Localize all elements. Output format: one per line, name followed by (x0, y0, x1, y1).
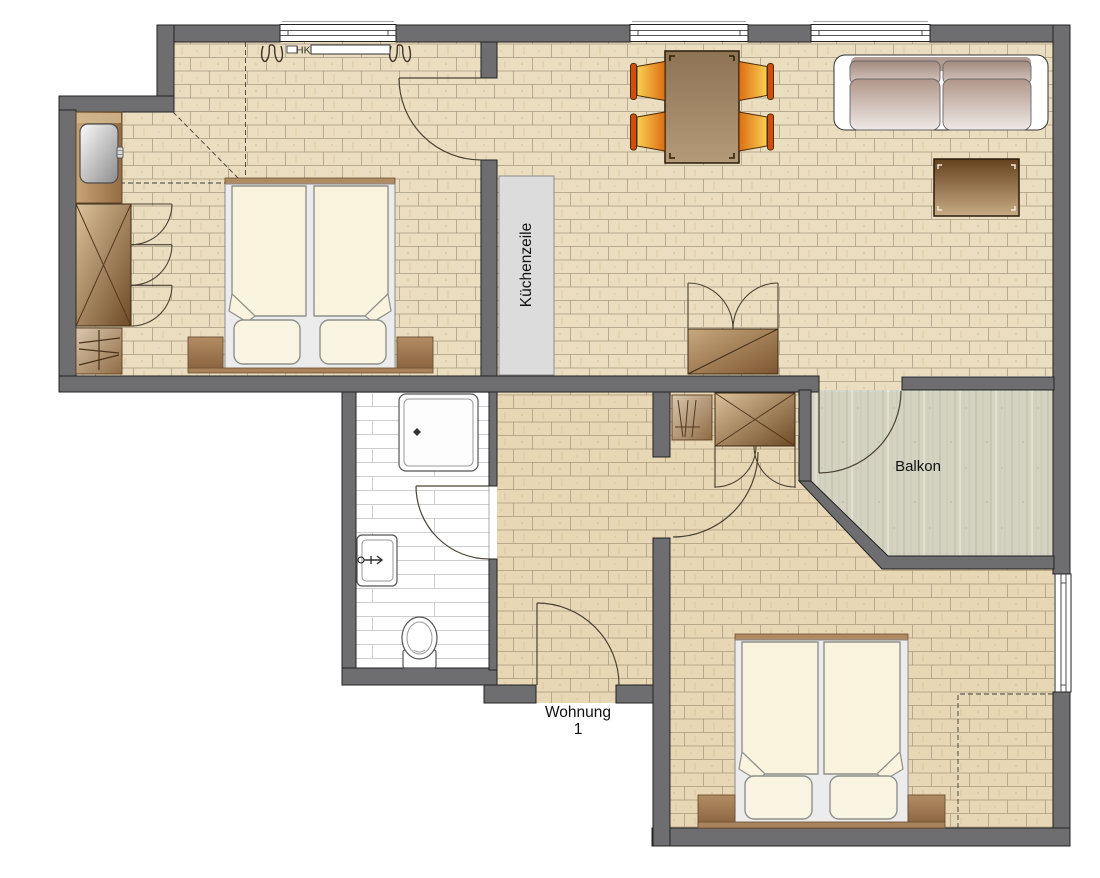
svg-text:HK: HK (296, 45, 311, 57)
svg-text:Balkon: Balkon (895, 458, 941, 475)
svg-text:Wohnung: Wohnung (545, 704, 611, 721)
svg-text:1: 1 (574, 721, 583, 738)
svg-text:Küchenzeile: Küchenzeile (518, 223, 535, 307)
